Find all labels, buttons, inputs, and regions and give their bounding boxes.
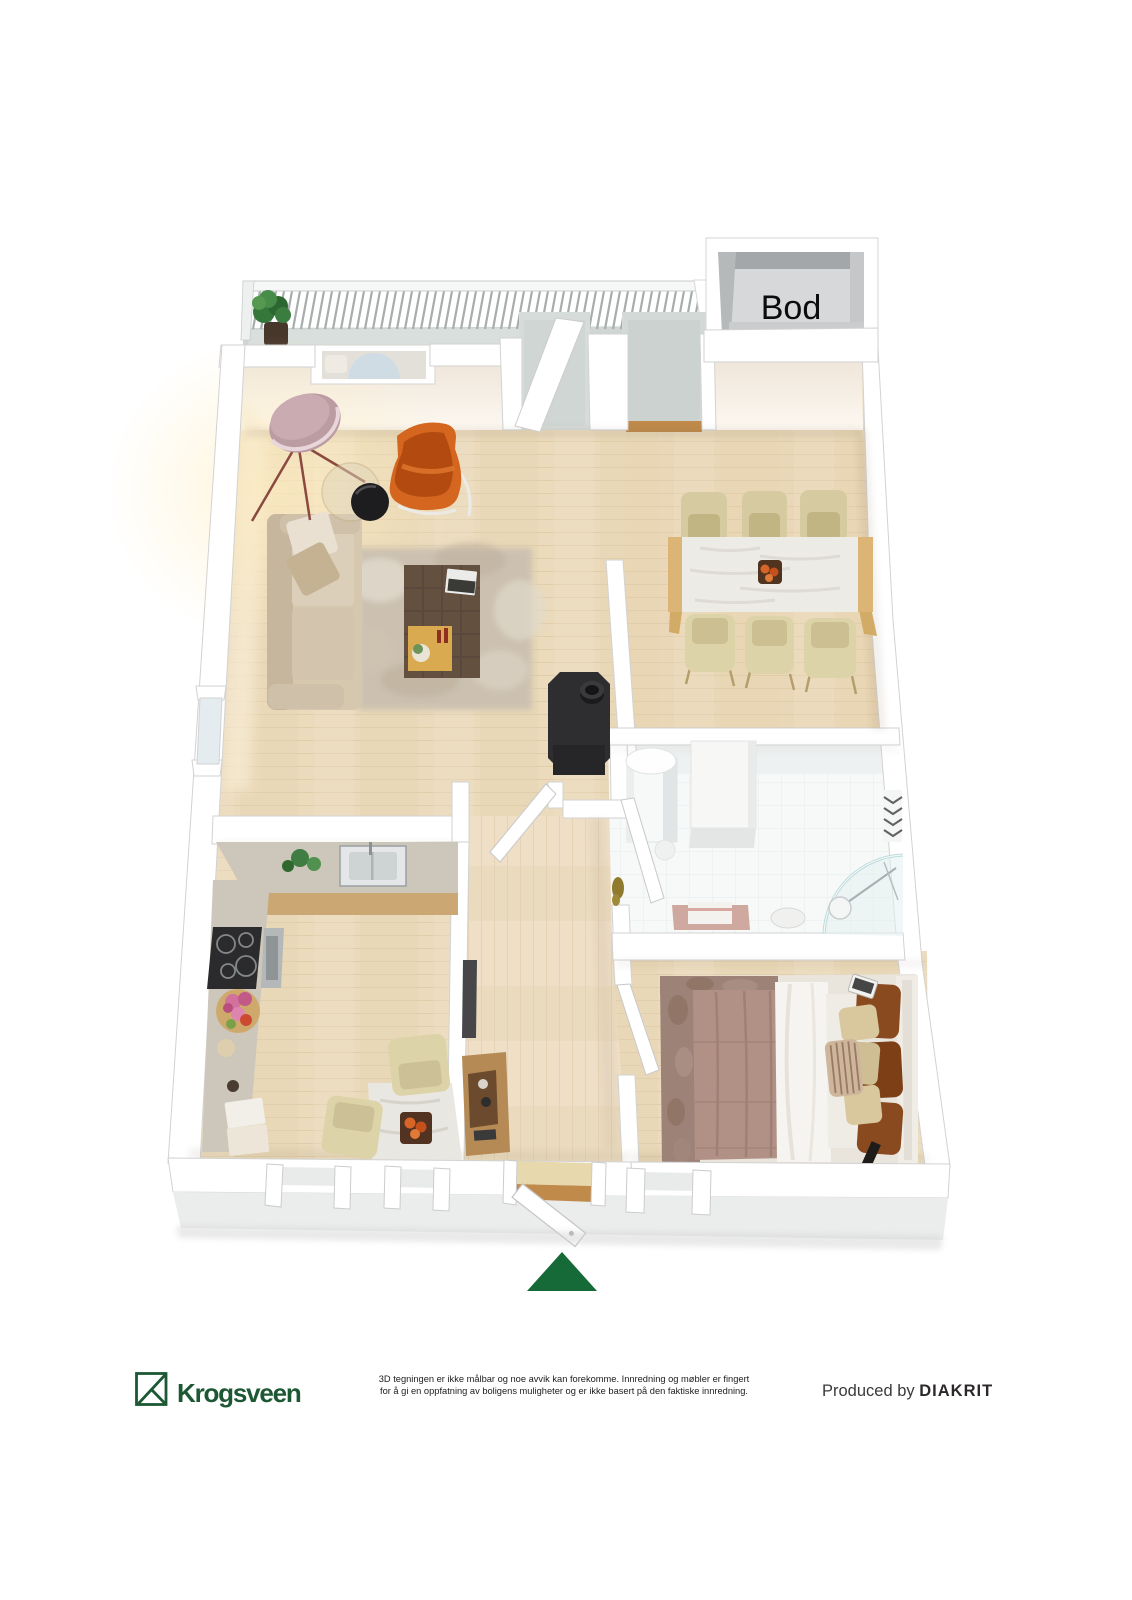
svg-text:Bod: Bod <box>761 289 822 327</box>
svg-text:Produced by DIAKRIT: Produced by DIAKRIT <box>822 1382 993 1400</box>
svg-text:Krogsveen: Krogsveen <box>177 1378 301 1408</box>
svg-text:for å gi en oppfatning av boli: for å gi en oppfatning av boligens mulig… <box>380 1386 748 1396</box>
svg-text:3D tegningen er ikke målbar og: 3D tegningen er ikke målbar og noe avvik… <box>379 1374 750 1384</box>
